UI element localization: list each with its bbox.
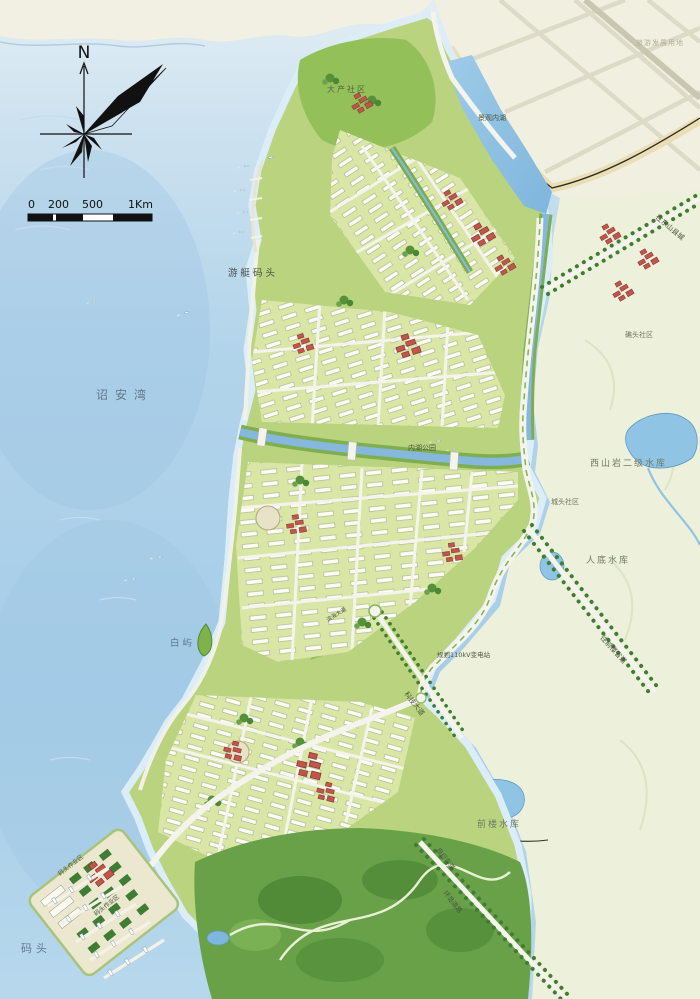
south-forest: [194, 828, 531, 999]
compass-north-label: N: [78, 43, 91, 63]
circular-plaza: [256, 506, 280, 530]
map-canvas: N 0 200 500 1Km 诏安湾 游艇码头 白屿 码头 景观内湖 内湖公园…: [0, 0, 700, 999]
bay-label: 诏安湾: [96, 387, 153, 402]
wharf-label: 码头: [21, 942, 51, 955]
xishanyan-reservoir-label: 西山岩二级水库: [590, 457, 667, 469]
substation-label: 规划110kV变电站: [437, 650, 491, 659]
tourism-land-label: 旅游发展用地: [636, 38, 684, 47]
scale-tick-500: 500: [82, 198, 103, 211]
dachan-community-label: 大产社区: [327, 84, 367, 94]
landscape-lake-label: 景观内湖: [478, 113, 506, 122]
white-islet-label: 白屿: [170, 637, 195, 649]
scale-tick-1km: 1Km: [128, 198, 153, 211]
forest-pond: [207, 931, 229, 945]
jiaotou-community-label: 礁头社区: [625, 330, 653, 339]
inner-lake-park-label: 内湖公园: [408, 443, 436, 452]
rendi-reservoir-label: 人底水库: [586, 554, 630, 566]
qianlou-reservoir-label: 前楼水库: [477, 818, 521, 830]
chengtou-community-label: 城头社区: [551, 497, 579, 506]
scale-tick-200: 200: [48, 198, 69, 211]
marina-label: 游艇码头: [228, 267, 278, 279]
roundabout: [369, 605, 381, 617]
scale-tick-0: 0: [28, 198, 35, 211]
master-plan-map: N 0 200 500 1Km 诏安湾 游艇码头 白屿 码头 景观内湖 内湖公园…: [0, 0, 700, 999]
